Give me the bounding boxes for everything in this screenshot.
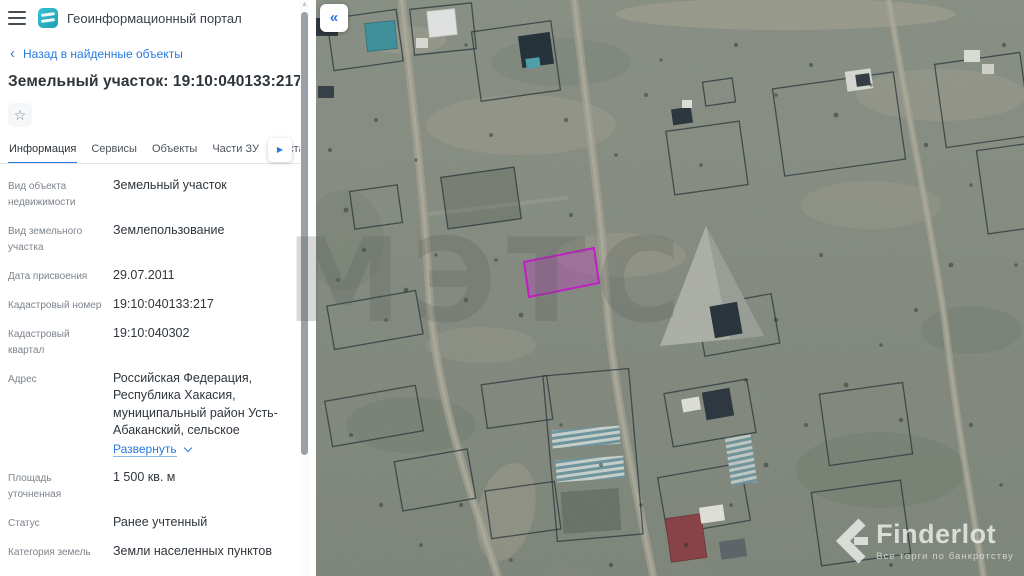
tab-services[interactable]: Сервисы xyxy=(90,137,138,163)
back-chevron-icon: ‹ xyxy=(10,46,15,61)
info-row-permitted-use: Вид разрешенного использования для индив… xyxy=(8,572,302,576)
info-row-assignment-date: Дата присвоения 29.07.2011 xyxy=(8,267,302,285)
chevron-down-icon xyxy=(183,444,191,452)
tabs-bar: Информация Сервисы Объекты Части ЗУ Сост… xyxy=(0,137,310,164)
tab-parcel-parts[interactable]: Части ЗУ xyxy=(211,137,260,163)
app-title: Геоинформационный портал xyxy=(67,11,242,26)
info-row-object-type: Вид объекта недвижимости Земельный участ… xyxy=(8,177,302,211)
info-rows: Вид объекта недвижимости Земельный участ… xyxy=(0,164,310,576)
info-row-cadastral-number: Кадастровый номер 19:10:040133:217 xyxy=(8,296,302,314)
hamburger-menu-icon[interactable] xyxy=(8,11,26,25)
tabs-scroll-right-button[interactable]: ▶ xyxy=(268,138,292,162)
expand-address-link[interactable]: Развернуть xyxy=(113,442,191,457)
geoportal-page: Геоинформационный портал ‹ Назад в найде… xyxy=(0,0,1024,576)
scrollbar-up-arrow-icon[interactable]: ▲ xyxy=(300,1,309,8)
favorite-button[interactable]: ☆ xyxy=(8,103,32,127)
app-header: Геоинформационный портал xyxy=(0,0,310,36)
back-to-results-link[interactable]: ‹ Назад в найденные объекты xyxy=(0,36,310,65)
collapse-panel-button[interactable]: « xyxy=(320,4,348,32)
back-link-label: Назад в найденные объекты xyxy=(23,47,183,61)
tab-information[interactable]: Информация xyxy=(8,137,77,164)
info-row-area: Площадь уточненная 1 500 кв. м xyxy=(8,469,302,503)
star-icon: ☆ xyxy=(14,108,27,122)
info-row-parcel-type: Вид земельного участка Землепользование xyxy=(8,222,302,256)
info-row-status: Статус Ранее учтенный xyxy=(8,514,302,532)
panel-scrollbar[interactable]: ▲ xyxy=(300,0,309,576)
panel-scrollbar-thumb[interactable] xyxy=(301,12,308,455)
info-row-land-category: Категория земель Земли населенных пункто… xyxy=(8,543,302,561)
info-row-address: Адрес Российская Федерация, Республика Х… xyxy=(8,370,302,458)
double-chevron-left-icon: « xyxy=(330,10,338,27)
triangle-right-icon: ▶ xyxy=(277,146,283,154)
page-title: Земельный участок: 19:10:040133:217 xyxy=(0,65,310,91)
object-info-panel: Геоинформационный портал ‹ Назад в найде… xyxy=(0,0,310,576)
geoportal-logo-icon xyxy=(38,8,58,28)
tab-objects[interactable]: Объекты xyxy=(151,137,198,163)
satellite-map[interactable] xyxy=(316,0,1024,576)
satellite-imagery xyxy=(316,0,1024,576)
info-row-cadastral-block: Кадастровый квартал 19:10:040302 xyxy=(8,325,302,359)
